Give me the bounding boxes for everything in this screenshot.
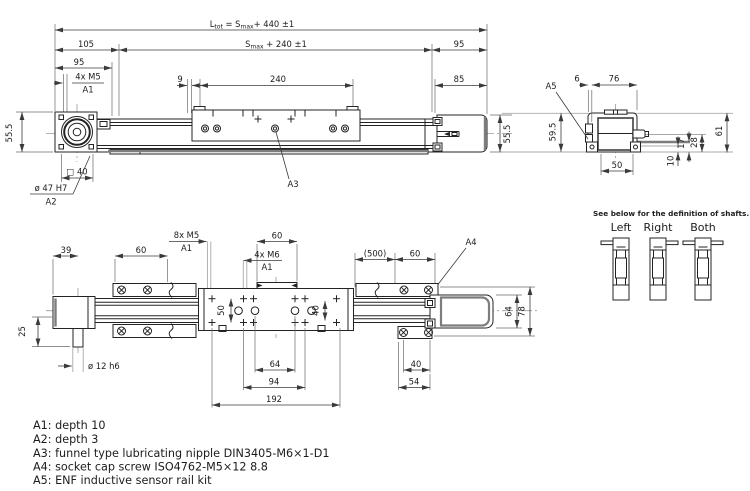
- dim-555-right: 55.5: [502, 125, 512, 144]
- dim-192: 192: [266, 394, 282, 404]
- note-a4: A4: socket cap screw ISO4762-M5×12 8.8: [33, 461, 268, 474]
- shaft-definitions: See below for the definition of shafts. …: [593, 209, 749, 300]
- dim-60-top: 60: [272, 231, 283, 241]
- drawing-canvas: Ltot = Smax+ 440 ±1 105 Smax + 240 ±1 95…: [0, 0, 750, 491]
- dim-50-bottom: 50: [216, 305, 226, 316]
- side-shaft: [633, 130, 645, 138]
- front-view: Ltot = Smax+ 440 ±1 105 Smax + 240 ±1 95…: [4, 19, 512, 207]
- shaft-right-label: Right: [644, 221, 674, 234]
- carriage-dog: [257, 283, 297, 289]
- left-end-block-bottom: [53, 297, 95, 329]
- thread-m5-bottom-label: 8x M5: [174, 230, 200, 240]
- dim-500: (500): [364, 249, 387, 259]
- dim-78: 78: [517, 306, 527, 317]
- notes-block: A1: depth 10 A2: depth 3 A3: funnel type…: [33, 419, 329, 487]
- thread-m5-label: 4x M5: [75, 72, 101, 82]
- thread-m6-label: 4x M6: [254, 250, 280, 260]
- dim-60-right: 60: [410, 249, 421, 259]
- thread-m6-ref: A1: [261, 262, 272, 272]
- shaft-diagram-left: [601, 238, 629, 300]
- sensor-ref-a5: A5: [545, 81, 556, 91]
- side-view: 6 76 A5 59.5 61 28 17 10 50: [502, 74, 733, 176]
- dim-ltot: Ltot = Smax+ 440 ±1: [210, 19, 295, 31]
- dim-39: 39: [61, 245, 72, 255]
- shaft-diagram-both: [683, 238, 723, 300]
- dim-shaft-12h6: ø 12 h6: [88, 361, 120, 371]
- dim-40-carriage: 40: [311, 305, 321, 316]
- dim-50-side: 50: [612, 160, 623, 170]
- dim-60-left: 60: [136, 245, 147, 255]
- dim-9: 9: [177, 74, 182, 84]
- dim-595: 59.5: [548, 123, 558, 142]
- input-shaft: [73, 329, 83, 348]
- note-a5: A5: ENF inductive sensor rail kit: [33, 474, 212, 487]
- dim-76: 76: [609, 74, 620, 84]
- bore-ref-a2: A2: [45, 197, 56, 207]
- dim-bore-47: ø 47 H7: [35, 183, 68, 193]
- dim-25: 25: [17, 326, 27, 337]
- shaft-defs-title: See below for the definition of shafts.: [593, 209, 749, 218]
- nipple-ref-a3: A3: [287, 179, 298, 189]
- note-a3: A3: funnel type lubricating nipple DIN34…: [33, 447, 329, 460]
- bottom-view: 8x M5 A1 60 4x M6 A1 (500) 60 A4 39: [17, 230, 540, 408]
- technical-drawing-page: Ltot = Smax+ 440 ±1 105 Smax + 240 ±1 95…: [0, 0, 750, 491]
- dim-64-right: 64: [504, 306, 514, 317]
- dim-10: 10: [666, 156, 676, 167]
- dim-240: 240: [270, 74, 286, 84]
- dim-61: 61: [714, 126, 724, 137]
- shaft-diagram-right: [650, 238, 678, 300]
- shaft-left-label: Left: [611, 221, 632, 234]
- dim-105: 105: [78, 39, 94, 49]
- note-a1: A1: depth 10: [33, 419, 105, 432]
- dim-95-left: 95: [74, 57, 85, 67]
- note-a2: A2: depth 3: [33, 433, 98, 446]
- dim-17: 17: [676, 138, 686, 149]
- right-end-block-bottom: [430, 295, 493, 328]
- screw-ref-a4: A4: [465, 237, 476, 247]
- dim-94: 94: [269, 377, 280, 387]
- dim-40-rail: 40: [411, 359, 422, 369]
- dim-54: 54: [409, 377, 420, 387]
- dim-28: 28: [689, 137, 699, 148]
- dim-95-right: 95: [454, 39, 465, 49]
- dim-smax: Smax + 240 ±1: [245, 39, 307, 51]
- dim-64: 64: [270, 359, 281, 369]
- shaft-both-label: Both: [690, 221, 716, 234]
- thread-m5-ref: A1: [82, 85, 93, 95]
- dim-555-left: 55.5: [4, 124, 14, 143]
- dim-6: 6: [574, 74, 579, 84]
- thread-m5-bottom-ref: A1: [181, 243, 192, 253]
- dim-85: 85: [454, 74, 465, 84]
- right-end-block: [437, 115, 487, 152]
- sensor-rail-section: [586, 124, 593, 133]
